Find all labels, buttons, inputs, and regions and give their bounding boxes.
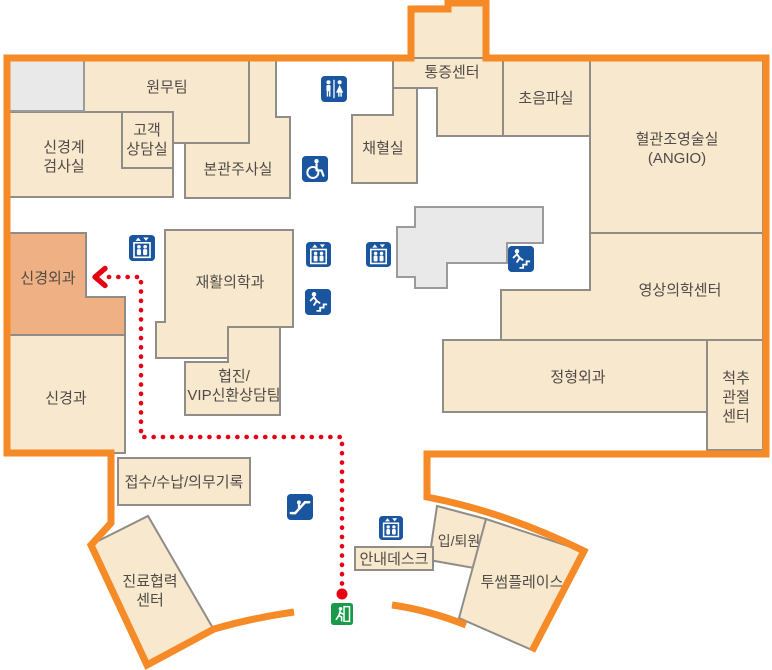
room-label: 통증센터 (424, 64, 479, 81)
wheelchair-accessible-icon (302, 156, 328, 182)
room-label-line1: 진료협력 (122, 573, 177, 590)
floor-map-canvas: 원무팀 신경계 검사실 고객 상담실 본관주사실 채혈실 통증센터 초음파실 (0, 0, 772, 670)
room-ultrasound: 초음파실 (503, 58, 590, 136)
room-label: 입/퇴원 (438, 533, 481, 549)
room-label-line2: 관절 (722, 389, 750, 406)
room-label-line2: VIP신환상담팀 (187, 387, 280, 404)
room-label: 원무팀 (146, 79, 187, 96)
room-spine-joint: 척추 관절 센터 (707, 340, 763, 450)
elevator-icon (366, 242, 391, 267)
room-label-line3: 센터 (722, 408, 750, 425)
room-customer-consult-shape (122, 112, 173, 168)
room-orthopedics: 정형외과 (443, 340, 707, 412)
room-pain-center-lobe (414, 5, 483, 58)
room-label: 투썸플레이스 (481, 574, 564, 591)
room-label: 영상의학센터 (639, 282, 722, 299)
route-arrow-head (95, 269, 105, 286)
emergency-exit-icon (331, 603, 353, 625)
room-label: 안내데스크 (359, 551, 428, 568)
room-label-line1: 협진/ (218, 368, 251, 385)
building-boundary-entrance-arc (392, 605, 466, 625)
room-label-line2: 상담실 (126, 141, 167, 158)
restroom-icon (321, 76, 347, 102)
route-start-dot (337, 589, 348, 600)
room-info-desk: 안내데스크 (355, 547, 433, 570)
room-customer-consult: 고객 상담실 (122, 112, 173, 168)
room-neurosurgery-destination: 신경외과 (8, 233, 125, 335)
room-blood-collection-shape (352, 88, 417, 183)
room-imaging-center-shape (501, 233, 763, 340)
room-label: 초음파실 (518, 90, 573, 107)
room-label-line1: 고객 (133, 122, 161, 139)
room-label: 신경외과 (20, 270, 75, 287)
room-imaging-center: 영상의학센터 (501, 233, 763, 340)
room-label-line2: 센터 (136, 592, 164, 609)
escalator-icon (287, 494, 313, 520)
room-blood-collection: 채혈실 (352, 88, 417, 183)
room-angiography: 혈관조영술실 (ANGIO) (590, 58, 763, 233)
elevator-icon (129, 235, 155, 261)
room-label-line1: 척추 (722, 370, 750, 387)
hospital-floor-map: 원무팀 신경계 검사실 고객 상담실 본관주사실 채혈실 통증센터 초음파실 (0, 0, 772, 670)
room-neurology: 신경과 (8, 335, 125, 453)
room-label-line1: 신경계 (43, 139, 84, 156)
room-label-line2: 검사실 (43, 158, 84, 175)
room-label-line1: 혈관조영술실 (636, 131, 719, 148)
room-reception: 접수/수납/의무기록 (118, 458, 250, 505)
room-label-line2: (ANGIO) (648, 150, 706, 167)
elevator-icon (306, 242, 331, 267)
rooms-layer: 원무팀 신경계 검사실 고객 상담실 본관주사실 채혈실 통증센터 초음파실 (8, 5, 763, 664)
room-label: 정형외과 (550, 369, 605, 386)
stairs-icon (508, 246, 534, 272)
stairs-icon (305, 289, 331, 315)
room-label: 접수/수납/의무기록 (125, 474, 244, 491)
room-label: 채혈실 (362, 140, 403, 157)
elevator-icon (379, 516, 403, 540)
room-label: 재활의학과 (195, 274, 264, 291)
pain-center-upper-area (414, 5, 483, 58)
room-label: 본관주사실 (203, 161, 272, 178)
gray-block-topleft (8, 60, 84, 111)
room-label: 신경과 (45, 390, 87, 407)
